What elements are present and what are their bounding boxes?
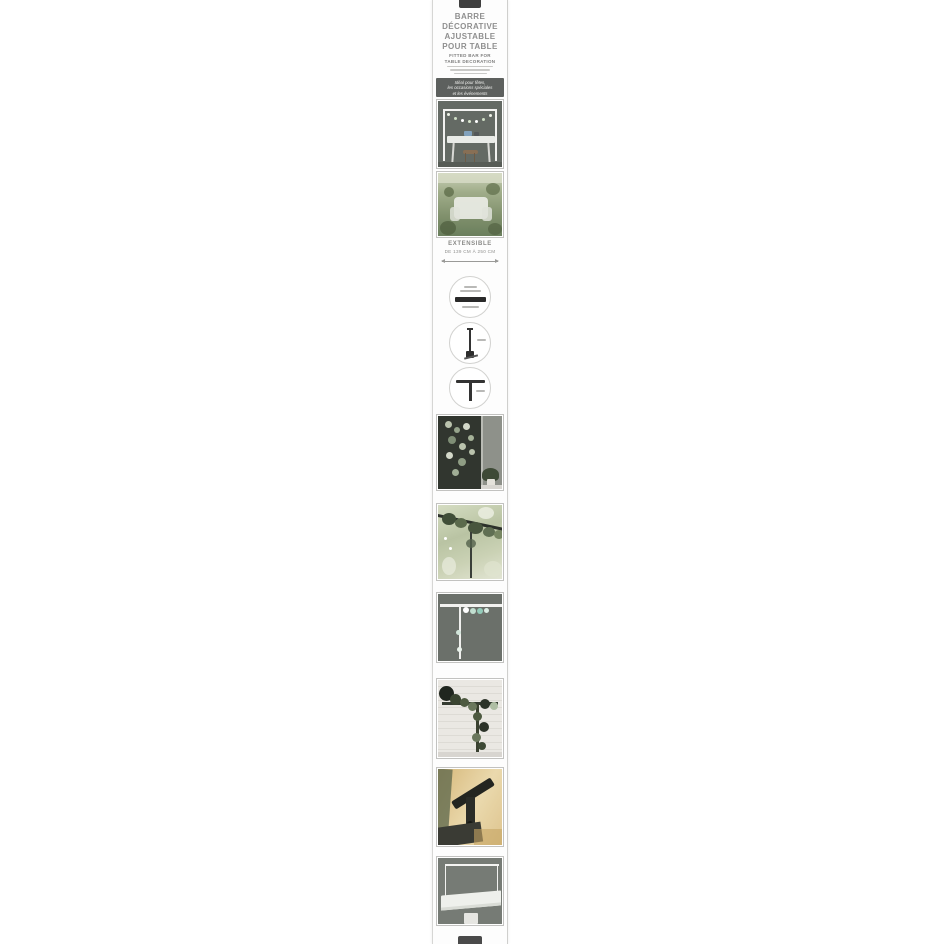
photo-disc-garland-dark [436,414,504,491]
title-line-2: DÉCORATIVE [433,22,507,32]
top-logo-mark [459,0,481,8]
extensible-range: DE 139 CM À 250 CM [433,249,507,254]
photo-bare-frame-table [436,856,504,926]
white-table [447,136,495,143]
product-subtitle: FITTED BAR FOR TABLE DECORATION [433,53,507,64]
product-title: BARRE DÉCORATIVE AJUSTABLE POUR TABLE [433,12,507,52]
extensible-label: EXTENSIBLE [433,241,507,247]
title-line-3: AJUSTABLE [433,32,507,42]
bottom-cropped-element [458,936,482,944]
bar-icon [455,297,486,302]
bar-top [443,109,497,111]
title-line-1: BARRE [433,12,507,22]
photo-table-garland-lights [436,99,504,169]
photo-balloon-corner-brick-wall [436,678,504,759]
photo-garden-scene [436,171,504,238]
package-strip: BARRE DÉCORATIVE AJUSTABLE POUR TABLE FI… [432,0,508,944]
photo-greenery-bar-outdoor [436,503,504,581]
t-bar-vertical [469,382,472,401]
photo-frame-pastel-balls [436,592,504,663]
bar-top [440,604,502,607]
title-line-4: POUR TABLE [433,42,507,52]
tagline-line-3: et les événements [436,91,504,97]
diagram-t-bar-circle [449,367,491,409]
extension-arrow-icon [442,261,498,262]
product-photo-canvas: BARRE DÉCORATIVE AJUSTABLE POUR TABLE FI… [0,0,944,944]
bar-top [445,864,499,866]
fine-print [433,66,507,76]
tagline-band: Idéal pour fêtes, les occasions spéciale… [436,78,504,97]
photo-clamp-closeup [436,767,504,847]
subtitle-line-2: TABLE DECORATION [433,59,507,65]
diagram-bar-circle [449,276,491,318]
diagram-pole-clamp-circle [449,322,491,364]
